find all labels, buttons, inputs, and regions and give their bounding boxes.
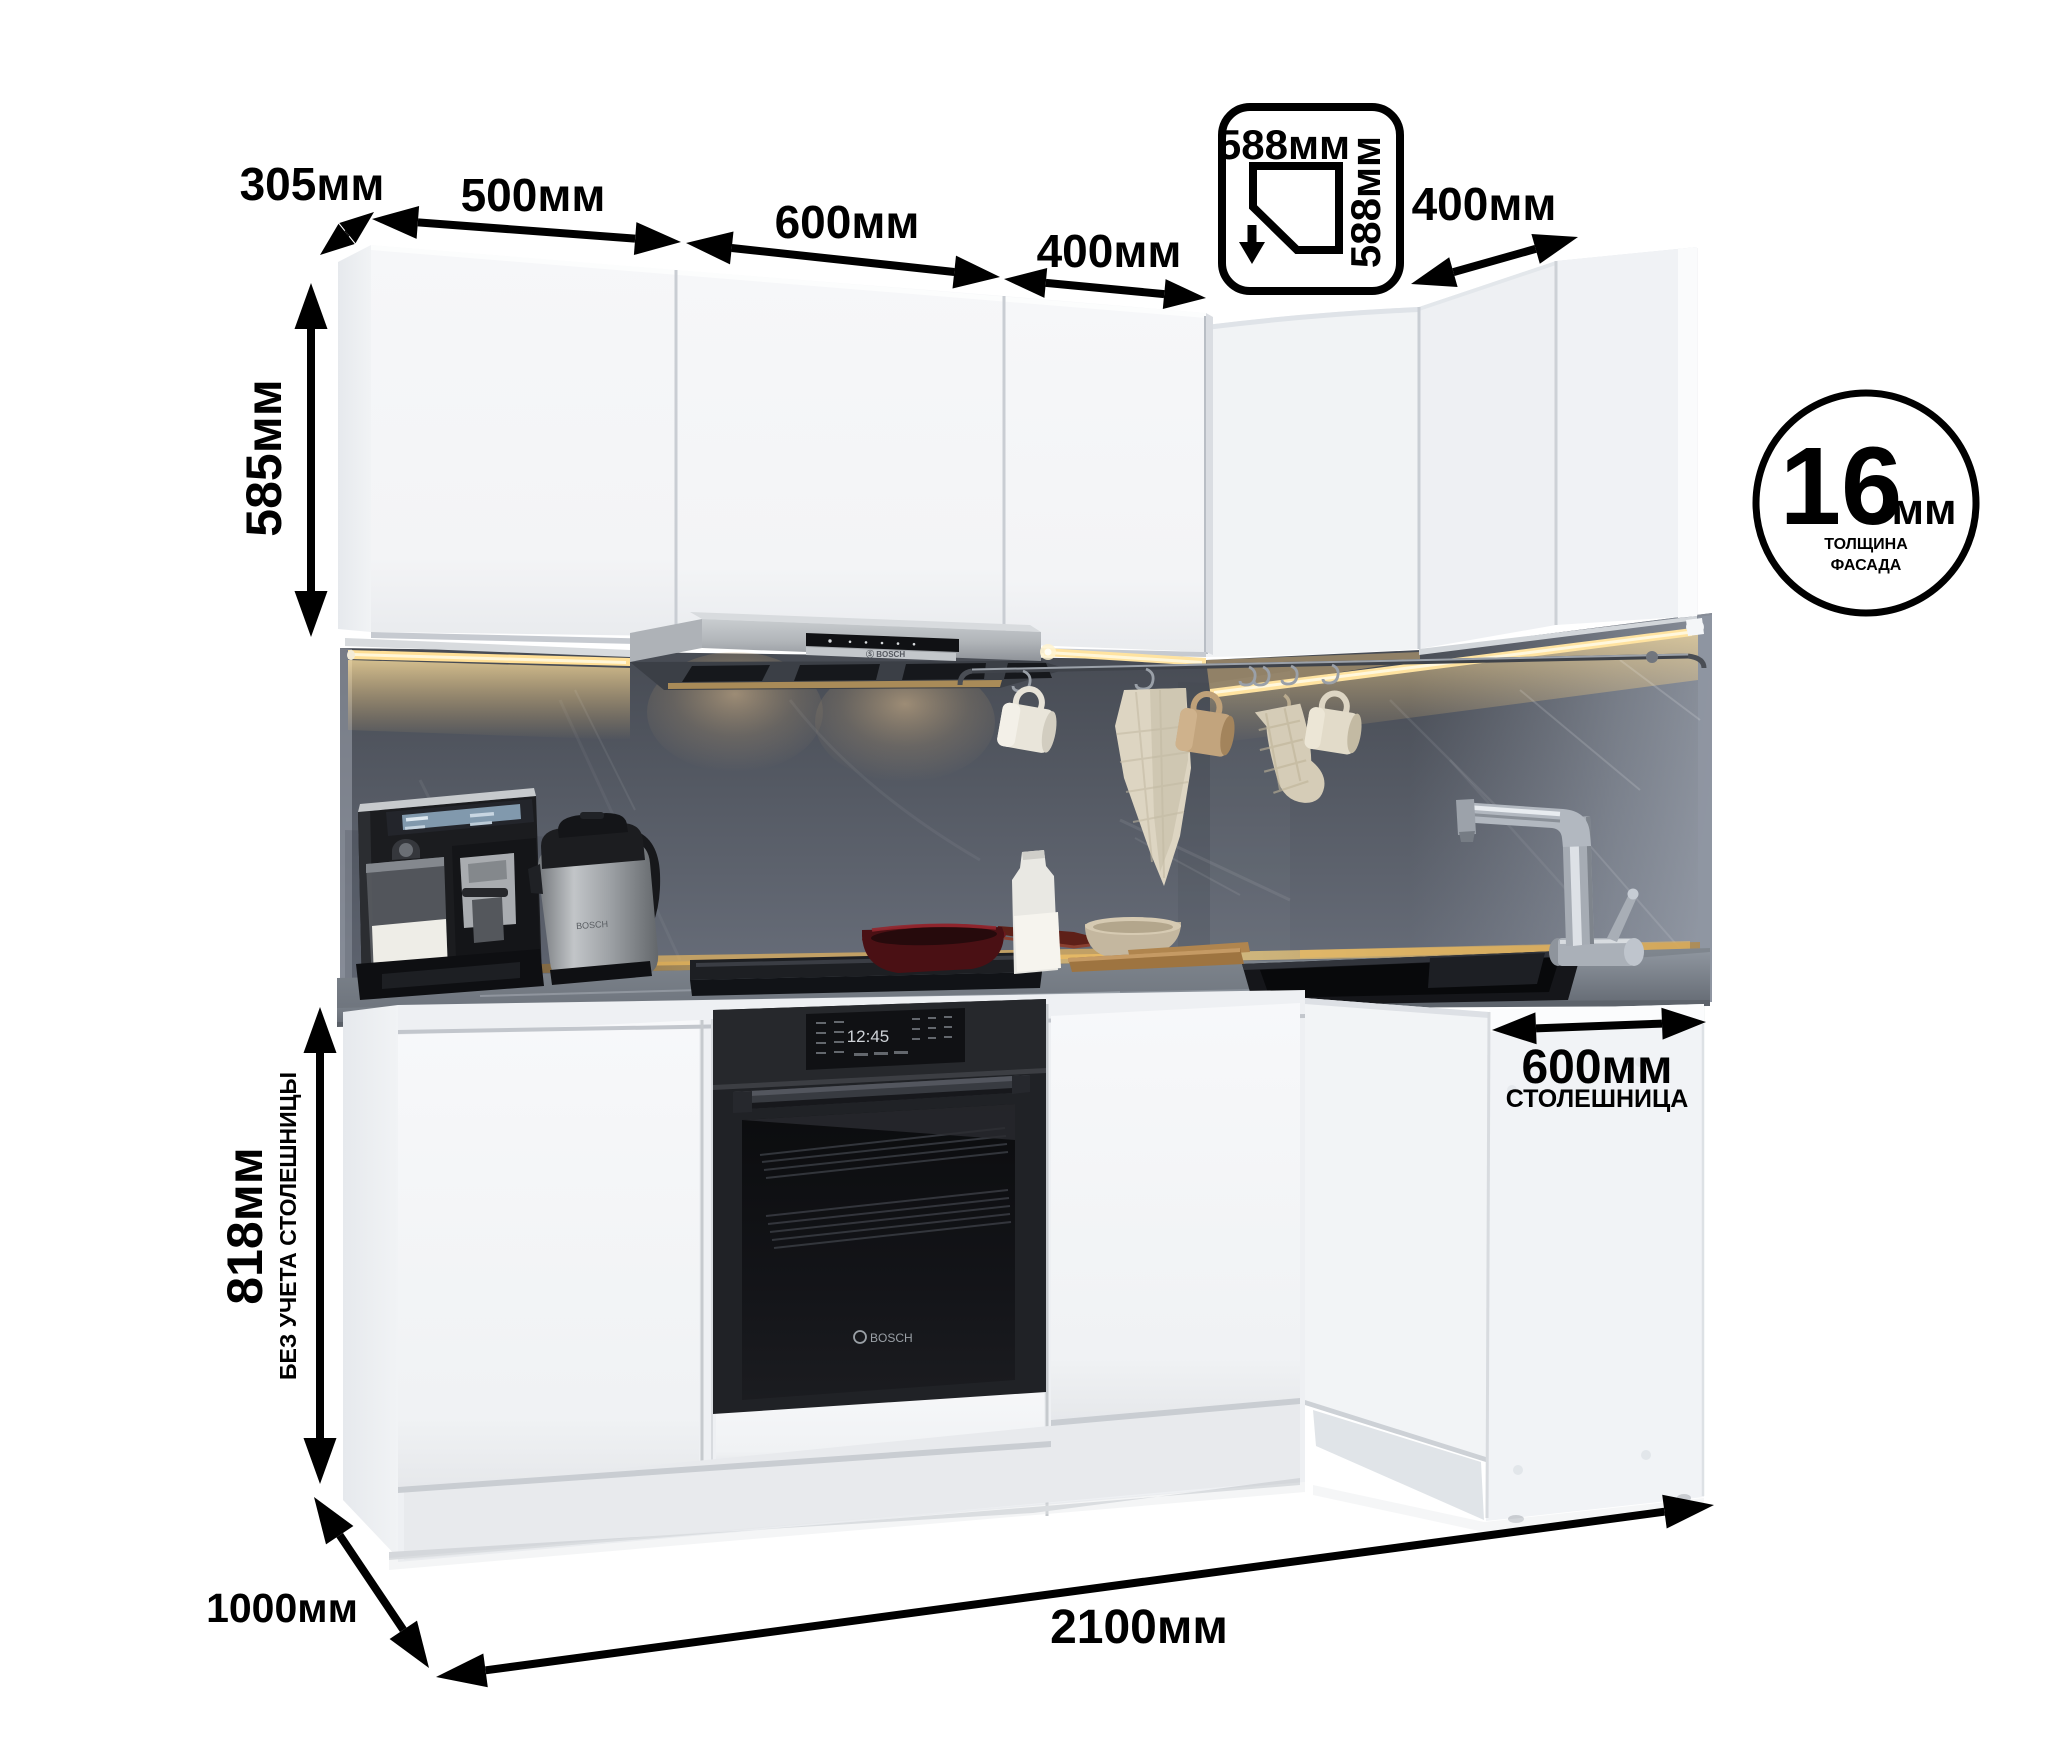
svg-text:12:45: 12:45 (847, 1027, 890, 1046)
svg-text:588мм: 588мм (1342, 136, 1389, 268)
svg-text:1000мм: 1000мм (206, 1585, 358, 1631)
svg-text:400мм: 400мм (1412, 178, 1557, 230)
svg-text:БЕЗ УЧЕТА СТОЛЕШНИЦЫ: БЕЗ УЧЕТА СТОЛЕШНИЦЫ (275, 1072, 301, 1380)
svg-text:16: 16 (1780, 425, 1902, 548)
svg-text:2100мм: 2100мм (1050, 1601, 1228, 1654)
svg-text:ФАСАДА: ФАСАДА (1831, 557, 1902, 574)
svg-text:мм: мм (1891, 485, 1956, 534)
svg-text:585мм: 585мм (236, 379, 292, 536)
svg-text:305мм: 305мм (240, 158, 385, 210)
svg-text:500мм: 500мм (461, 169, 606, 221)
svg-text:Ⓢ BOSCH: Ⓢ BOSCH (866, 649, 905, 659)
svg-text:600мм: 600мм (775, 196, 920, 248)
svg-text:СТОЛЕШНИЦА: СТОЛЕШНИЦА (1506, 1085, 1689, 1113)
svg-text:588мм: 588мм (1218, 121, 1350, 168)
svg-text:BOSCH: BOSCH (870, 1331, 913, 1345)
svg-text:ТОЛЩИНА: ТОЛЩИНА (1824, 536, 1908, 553)
svg-text:400мм: 400мм (1037, 225, 1182, 277)
svg-text:818мм: 818мм (217, 1147, 273, 1304)
